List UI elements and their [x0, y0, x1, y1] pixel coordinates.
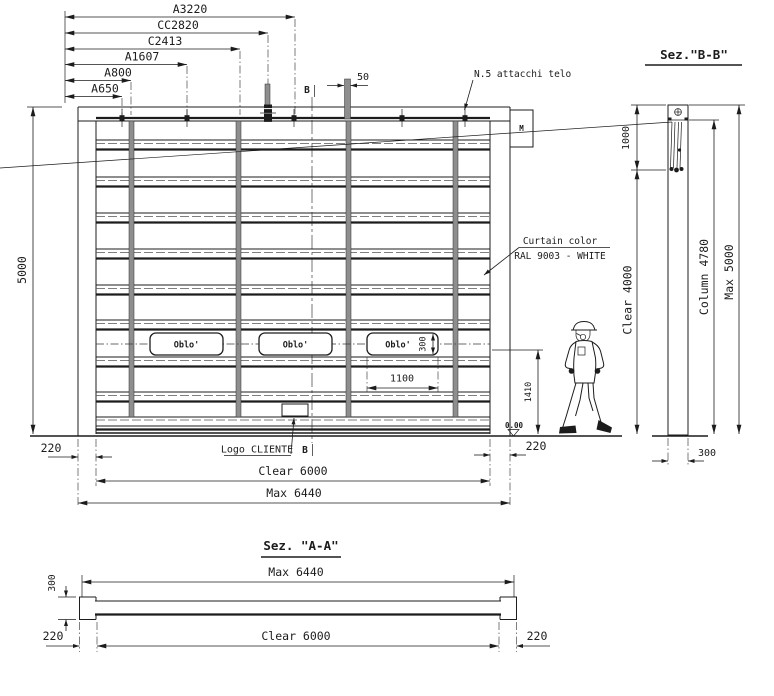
curtain-color-line2: RAL 9003 - WHITE [514, 251, 606, 262]
window-label-2: Oblo' [283, 341, 309, 351]
curtain-color-line1: Curtain color [523, 236, 598, 247]
technical-drawing-page: A3220 CC2820 C2413 A1607 A800 A650 50 B … [0, 0, 774, 696]
motor-label: M [519, 124, 524, 133]
attachments-annotation: N.5 attacchi telo [465, 69, 572, 110]
section-aa: Sez. "A-A" Max 6440 300 220 220 Clear 60… [43, 538, 550, 652]
section-b-marker-bottom: B [302, 445, 308, 456]
aa-bracket-left [80, 597, 97, 620]
logo-placeholder [282, 404, 308, 416]
dim-aa-offset-left: 220 [43, 629, 64, 643]
dim-aa-offset-right: 220 [527, 629, 548, 643]
dim-max-height: Max 5000 [722, 244, 736, 299]
dim-total-height: 5000 [15, 256, 29, 284]
section-b-marker-top: B [304, 85, 310, 96]
dim-max-width: Max 6440 [266, 486, 321, 500]
top-dimension-chain: A3220 CC2820 C2413 A1607 A800 A650 [65, 2, 295, 115]
dim-a650: A650 [91, 82, 119, 96]
dim-column-depth: 300 [698, 448, 716, 459]
porthole-windows: Oblo' Oblo' Oblo' [150, 333, 438, 355]
floor-level-label: 0.00 [505, 421, 524, 430]
window-label-3: Oblo' [385, 341, 411, 351]
windbar-bands [96, 140, 490, 402]
dim-aa-max-width: Max 6440 [268, 565, 323, 579]
dim-a800: A800 [104, 66, 132, 80]
dim-clear-width: Clear 6000 [258, 464, 327, 478]
bb-belt-bundle [0, 122, 684, 172]
curtain-color-annotation: Curtain color RAL 9003 - WHITE [484, 236, 610, 275]
level-dims: 1410 0.00 [492, 350, 543, 436]
dim-offset-right: 220 [526, 439, 547, 453]
dim-cc2820: CC2820 [157, 18, 199, 32]
dim-aa-clear-width: Clear 6000 [261, 629, 330, 643]
section-aa-title: Sez. "A-A" [263, 538, 338, 553]
dim-column-height: Column 4780 [697, 239, 711, 315]
curtain-attachments [120, 105, 468, 128]
top-strap-left [265, 84, 270, 107]
dim-window-height: 300 [419, 336, 429, 351]
aa-bracket-right [500, 597, 517, 620]
dim-roll-zone: 1000 [621, 126, 632, 150]
dim-c2413: C2413 [148, 34, 183, 48]
front-bottom-dims: 220 220 Clear 6000 Max 6440 [41, 439, 547, 507]
dim-a1607: A1607 [125, 50, 160, 64]
door-drawing-svg: A3220 CC2820 C2413 A1607 A800 A650 50 B … [0, 0, 774, 696]
dim-aa-depth: 300 [47, 574, 58, 591]
worker-figure [559, 322, 612, 434]
logo-note: Logo CLIENTE [221, 445, 293, 456]
section-bb-title: Sez."B-B" [660, 47, 728, 62]
dim-a3220: A3220 [173, 2, 208, 16]
dim-window-width: 1100 [390, 374, 414, 385]
dim-handle-height: 1410 [524, 382, 534, 402]
dim-offset-left: 220 [41, 441, 62, 455]
dim-50: 50 [357, 72, 369, 83]
top-strap-right [345, 79, 351, 119]
height-dim-5000: 5000 [15, 107, 62, 434]
attachments-note: N.5 attacchi telo [474, 69, 572, 80]
window-label-1: Oblo' [174, 341, 200, 351]
dim-clear-height: Clear 4000 [621, 265, 635, 334]
